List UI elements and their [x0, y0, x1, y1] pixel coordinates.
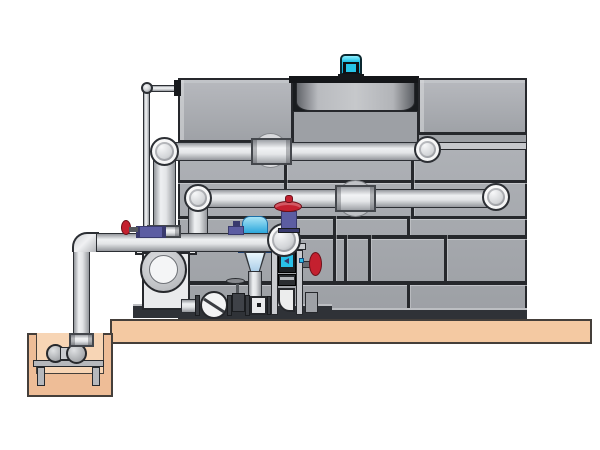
overflow-pipe-vertical [143, 92, 150, 228]
tee-sensor-dot [257, 303, 261, 307]
gate-valve-body [232, 293, 245, 312]
upper-pipe-elbow-ball [150, 137, 179, 166]
tower-mid-face [293, 111, 418, 143]
panel-seam [407, 216, 410, 235]
fan-motor-base [338, 74, 364, 80]
cooling-tower-illustration [0, 0, 600, 450]
panel-seam [344, 235, 347, 281]
wall-valve-sensor [299, 258, 304, 263]
pump-stand-leg [37, 367, 45, 386]
red-gate-valve-flange [278, 228, 300, 233]
fan-cowl-drum [296, 82, 415, 111]
strainer-inlet-valve-top [233, 221, 240, 227]
red-gate-valve-hub [285, 195, 293, 203]
middle-pipe-sleeve [335, 185, 376, 212]
concrete-platform [110, 319, 592, 344]
wall-valve-handwheel [309, 252, 322, 276]
overflow-wall-flange [174, 80, 181, 96]
column-junction-slot [280, 277, 294, 280]
overflow-elbow [141, 82, 153, 94]
fan-motor-window [346, 64, 356, 72]
column-support-block [305, 292, 318, 313]
main-suction-header [96, 233, 286, 252]
pump-inlet-face [149, 255, 178, 284]
pump-stand-leg [92, 367, 100, 386]
tower-upper-right-box [418, 78, 527, 134]
tower-upper-left-box [178, 78, 293, 142]
upper-pipe-end-elbow [414, 136, 441, 163]
middle-pipe-elbow-ball [184, 184, 212, 212]
column-elbow [278, 288, 295, 312]
header-isolation-valve [136, 226, 166, 238]
sump-suction-pipe [73, 250, 90, 342]
panel-seam [407, 285, 410, 308]
upper-pipe-sleeve [251, 138, 292, 165]
column-junction-box [278, 274, 296, 286]
column-post-left [271, 250, 278, 315]
suction-pipe-coupling [69, 333, 94, 347]
panel-seam [368, 235, 371, 281]
upper-supply-pipe [163, 142, 426, 161]
sump-pipe-elbow [72, 232, 99, 252]
middle-pipe-end-elbow [482, 183, 510, 211]
mini-drain-valve-stem [129, 227, 138, 232]
panel-seam [333, 216, 336, 281]
panel-seam [444, 235, 447, 281]
flow-meter-arrow-icon [284, 258, 289, 264]
strainer-inlet-valve [228, 226, 244, 235]
